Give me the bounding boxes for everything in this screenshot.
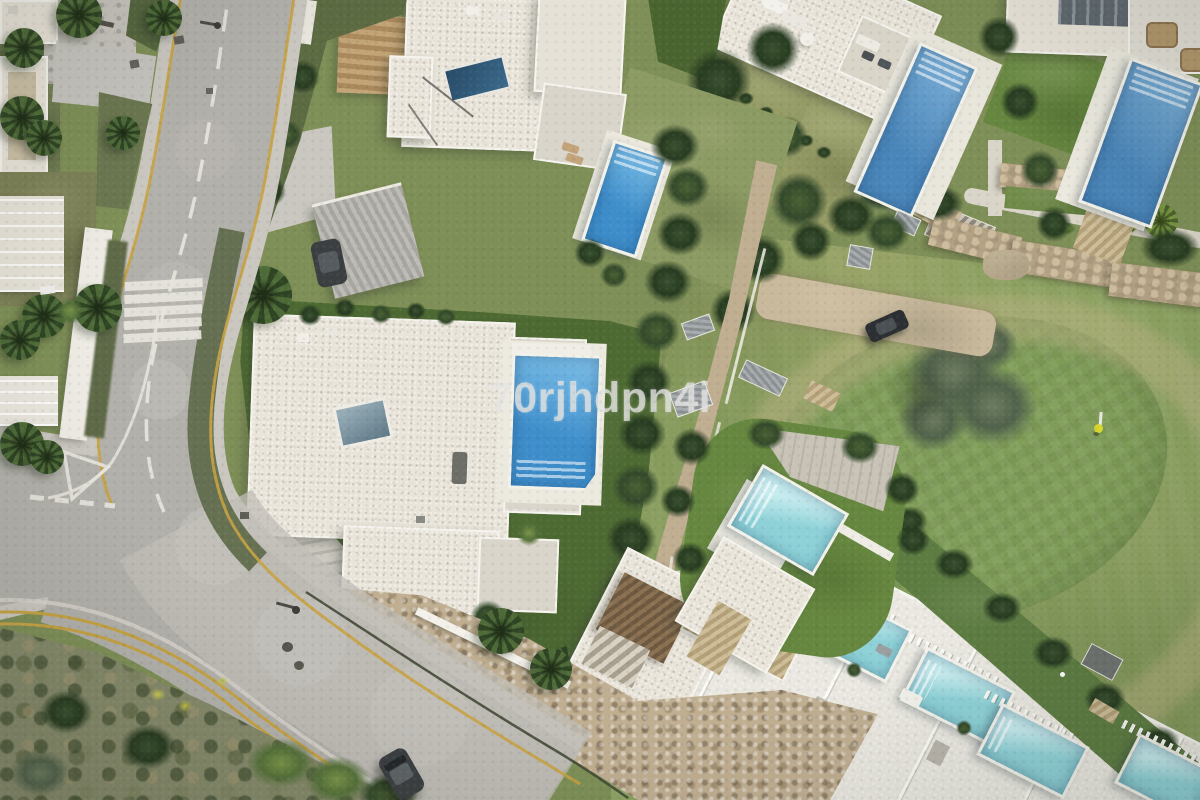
watermark-text: 70rjhdpn4i [468, 374, 732, 423]
palm-tree [0, 320, 40, 360]
street-lamp [292, 606, 300, 614]
manhole [206, 88, 213, 94]
palm-tree [4, 28, 44, 68]
manhole [173, 35, 184, 45]
manhole [240, 512, 249, 519]
palm-tree [30, 440, 64, 474]
road-wear-patch [370, 666, 470, 766]
street-lamp [214, 22, 221, 29]
left-white-block [0, 376, 58, 426]
road-wear-patch [130, 360, 190, 420]
palm-tree [146, 0, 182, 36]
manhole-round [294, 661, 304, 670]
road-wear-patch [175, 120, 235, 180]
yellow-flower-bush [216, 676, 229, 687]
scrub-bush [40, 690, 92, 734]
aerial-photo: 70rjhdpn4i [0, 0, 1200, 800]
yellow-flower-bush [178, 700, 192, 712]
manhole [129, 59, 139, 68]
left-terraces [0, 196, 64, 292]
chimney [8, 6, 18, 14]
bright-bush [56, 298, 84, 324]
palm-tree [26, 120, 62, 156]
palm-tree [106, 116, 140, 150]
manhole-round [282, 642, 293, 652]
yellow-flower-bush [150, 688, 166, 701]
scrub-bush [10, 750, 70, 796]
scrub-bush [120, 724, 176, 770]
